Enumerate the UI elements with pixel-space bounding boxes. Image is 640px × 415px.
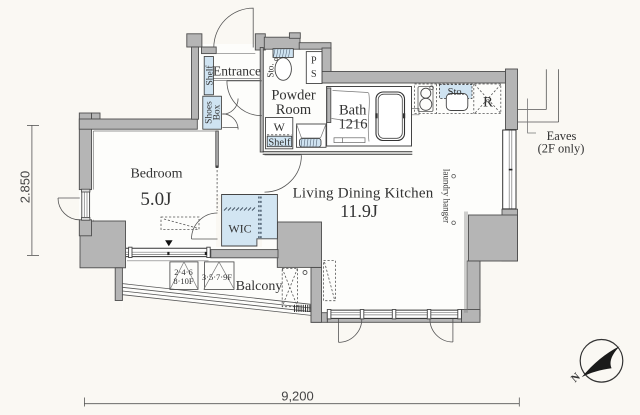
svg-text:(2F only): (2F only) bbox=[538, 142, 585, 156]
svg-text:Bedroom: Bedroom bbox=[130, 167, 182, 182]
svg-text:W: W bbox=[274, 120, 286, 134]
svg-text:Entrance: Entrance bbox=[213, 64, 261, 79]
svg-text:Shelf: Shelf bbox=[268, 137, 291, 148]
svg-text:Box: Box bbox=[213, 104, 223, 120]
svg-text:laundry hanger: laundry hanger bbox=[442, 169, 452, 223]
svg-text:P: P bbox=[311, 56, 317, 67]
svg-text:Sto.: Sto. bbox=[448, 87, 465, 98]
svg-text:9,200: 9,200 bbox=[281, 389, 314, 404]
svg-text:N: N bbox=[569, 371, 583, 385]
svg-text:1216: 1216 bbox=[339, 117, 368, 133]
svg-text:Room: Room bbox=[276, 102, 312, 118]
svg-text:5.0J: 5.0J bbox=[140, 189, 171, 210]
svg-text:2.850: 2.850 bbox=[18, 171, 33, 204]
svg-text:S: S bbox=[311, 69, 317, 80]
svg-text:Shelf: Shelf bbox=[204, 65, 215, 86]
svg-text:11.9J: 11.9J bbox=[340, 201, 378, 221]
svg-text:Balcony: Balcony bbox=[236, 279, 283, 294]
svg-text:Living Dining Kitchen: Living Dining Kitchen bbox=[293, 186, 434, 202]
svg-text:Sto.: Sto. bbox=[266, 63, 276, 77]
svg-text:8·10F: 8·10F bbox=[173, 276, 194, 286]
svg-text:R: R bbox=[483, 95, 493, 111]
svg-text:WIC: WIC bbox=[228, 222, 251, 236]
svg-text:3·5·7·9F: 3·5·7·9F bbox=[202, 272, 232, 282]
